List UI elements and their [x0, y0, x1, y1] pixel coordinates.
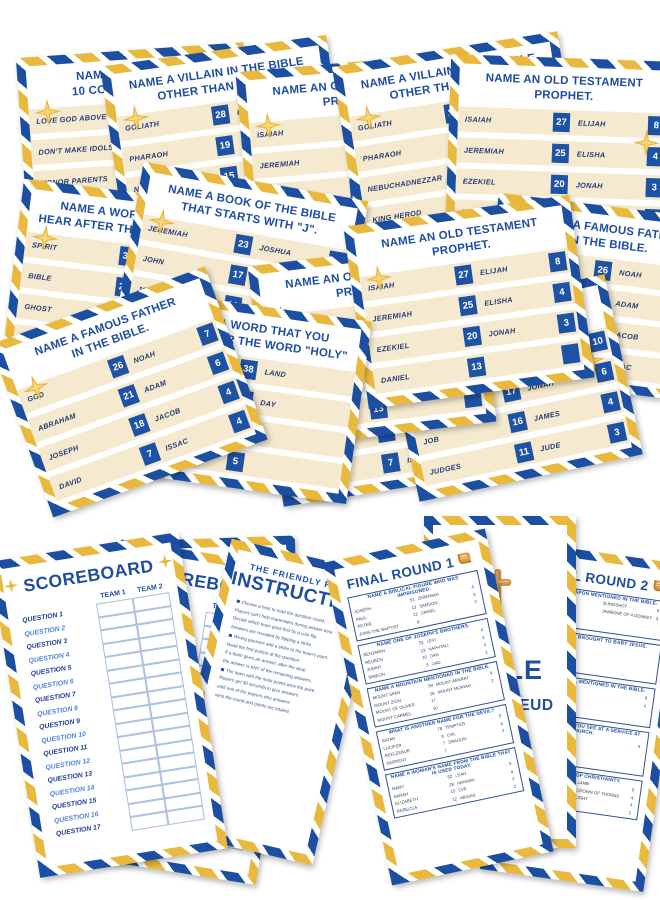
points-left: [590, 601, 603, 603]
points-badge: 20: [463, 326, 482, 347]
points-badge: 8: [548, 251, 567, 272]
points-right: [639, 712, 648, 713]
points-badge: 11: [514, 441, 535, 463]
answer-left: DANIEL: [380, 364, 468, 385]
points-badge: 18: [128, 413, 150, 437]
points-right: 2: [625, 809, 635, 815]
points-left: [580, 667, 593, 669]
points-right: [491, 694, 500, 696]
points-badge: 4: [217, 380, 239, 404]
points-badge: 20: [550, 175, 568, 195]
points-right: [638, 720, 647, 721]
answer-left: JEREMIAH: [464, 145, 552, 157]
sparkle-star-icon: [119, 101, 154, 140]
answer-left: JEREMIAH: [372, 302, 460, 323]
points-left: 7: [436, 747, 450, 755]
points-badge: 3: [607, 421, 628, 443]
points-right: 3: [652, 615, 660, 621]
points-right: [631, 768, 640, 769]
points-left: [576, 696, 589, 698]
points-badge: 3: [557, 312, 576, 333]
answer-left: EZEKIEL: [376, 333, 464, 354]
answer-right: ELISHA: [479, 290, 548, 308]
points-left: 12: [447, 795, 461, 803]
points-badge: 6: [207, 351, 229, 375]
points-right: 4: [626, 802, 636, 808]
points-badge: 16: [507, 411, 528, 433]
answer-right: ELIJAH: [474, 259, 543, 277]
answer-right: JAMES: [528, 401, 596, 424]
answer-right: ISSAC: [159, 423, 226, 455]
points-badge: 13: [467, 356, 486, 377]
points-right: 2: [510, 783, 520, 790]
points-right: 5: [653, 608, 660, 614]
sparkle-star-icon: [143, 204, 179, 244]
book-icon: [651, 578, 660, 596]
points-left: 10: [427, 704, 441, 712]
answer-row: JEREMIAH25ELISHA4: [457, 137, 660, 169]
sparkle-star-icon: [351, 101, 386, 140]
sparkle-star-icon: [252, 109, 285, 146]
points-right: [489, 687, 498, 689]
card-prophet-4: NAME AN OLD TESTAMENTPROPHET.ISAIAH27ELI…: [343, 195, 594, 409]
points-right: 5: [634, 744, 644, 750]
answer-right: DAY: [255, 397, 324, 415]
points-left: [575, 703, 588, 705]
sparkle-star-icon: [28, 221, 62, 259]
answer-left: EZEKIEL: [463, 176, 551, 188]
answer-right: [247, 463, 314, 472]
points-right: 4: [627, 795, 637, 801]
points-right: [500, 737, 509, 739]
product-photo-stage: NAME ONE OF THE10 COMMANDMENTSLOVE GOD A…: [0, 0, 660, 900]
points-left: [582, 652, 595, 654]
book-icon: [456, 550, 474, 569]
answer-right: NOAH: [614, 267, 660, 284]
points-badge: 4: [228, 410, 250, 434]
answer-right: JUDE: [534, 431, 602, 454]
points-left: [574, 711, 587, 713]
points-badge: 19: [215, 135, 234, 156]
points-right: [651, 625, 660, 626]
answer-left: JUDGES: [429, 450, 517, 477]
points-left: [577, 688, 590, 690]
answer-right: [488, 356, 555, 365]
sparkle-star-icon: [32, 96, 64, 133]
points-right: 4: [640, 702, 650, 708]
points-right: [647, 654, 656, 655]
points-badge: 4: [552, 282, 571, 303]
points-left: [587, 624, 600, 626]
points-left: [588, 616, 601, 618]
points-right: [645, 669, 654, 670]
answer-row: ISAIAH27ELIJAH8: [458, 106, 660, 138]
points-right: [646, 661, 655, 662]
sparkle-star-icon: [362, 261, 397, 300]
points-right: [650, 633, 659, 634]
points-left: 5: [418, 661, 432, 669]
answer-right: JONAH: [571, 180, 639, 191]
points-badge: 25: [552, 144, 570, 164]
answer-left: JEREMIAH: [259, 154, 347, 171]
points-badge: 27: [553, 113, 571, 133]
points-badge: 7: [139, 442, 161, 466]
points-badge: 4: [600, 391, 621, 413]
points-badge: 28: [211, 104, 230, 125]
points-badge: 23: [233, 234, 253, 256]
points-badge: 25: [458, 295, 477, 316]
points-left: [589, 609, 602, 611]
points-badge: [561, 343, 580, 364]
sparkle-star-icon: [2, 577, 21, 600]
answer-left: ISAIAH: [465, 114, 553, 126]
card-question: NAME AN OLD TESTAMENTPROPHET.: [459, 70, 660, 107]
points-right: 9: [641, 695, 651, 701]
points-right: [632, 761, 641, 762]
sparkle-star-icon: [631, 127, 660, 163]
points-badge: 26: [107, 355, 129, 379]
points-left: 9: [409, 618, 423, 626]
points-left: [584, 645, 597, 647]
points-badge: 17: [228, 264, 248, 286]
answer-right: JONAH: [483, 321, 552, 339]
points-left: [581, 660, 594, 662]
answer-left: BIBLE: [28, 271, 116, 291]
points-right: [633, 753, 642, 754]
points-right: 2: [481, 649, 491, 656]
points-badge: 7: [196, 322, 218, 346]
points-badge: 27: [454, 264, 473, 285]
answer-right: ADAM: [610, 298, 660, 315]
points-badge: 5: [226, 451, 245, 472]
points-badge: 7: [381, 452, 401, 473]
points-right: [473, 608, 482, 610]
sparkle-star-icon: [156, 552, 175, 575]
answer-right: LAND: [259, 367, 328, 385]
points-right: 5: [628, 787, 638, 793]
points-badge: 21: [118, 384, 140, 408]
answer-left: PHARAOH: [362, 140, 450, 163]
points-badge: 3: [645, 178, 660, 198]
answer-left: NEBUCHADNEZZAR: [367, 171, 455, 194]
points-right: [644, 676, 653, 677]
answer-left: PHARAOH: [129, 142, 217, 163]
